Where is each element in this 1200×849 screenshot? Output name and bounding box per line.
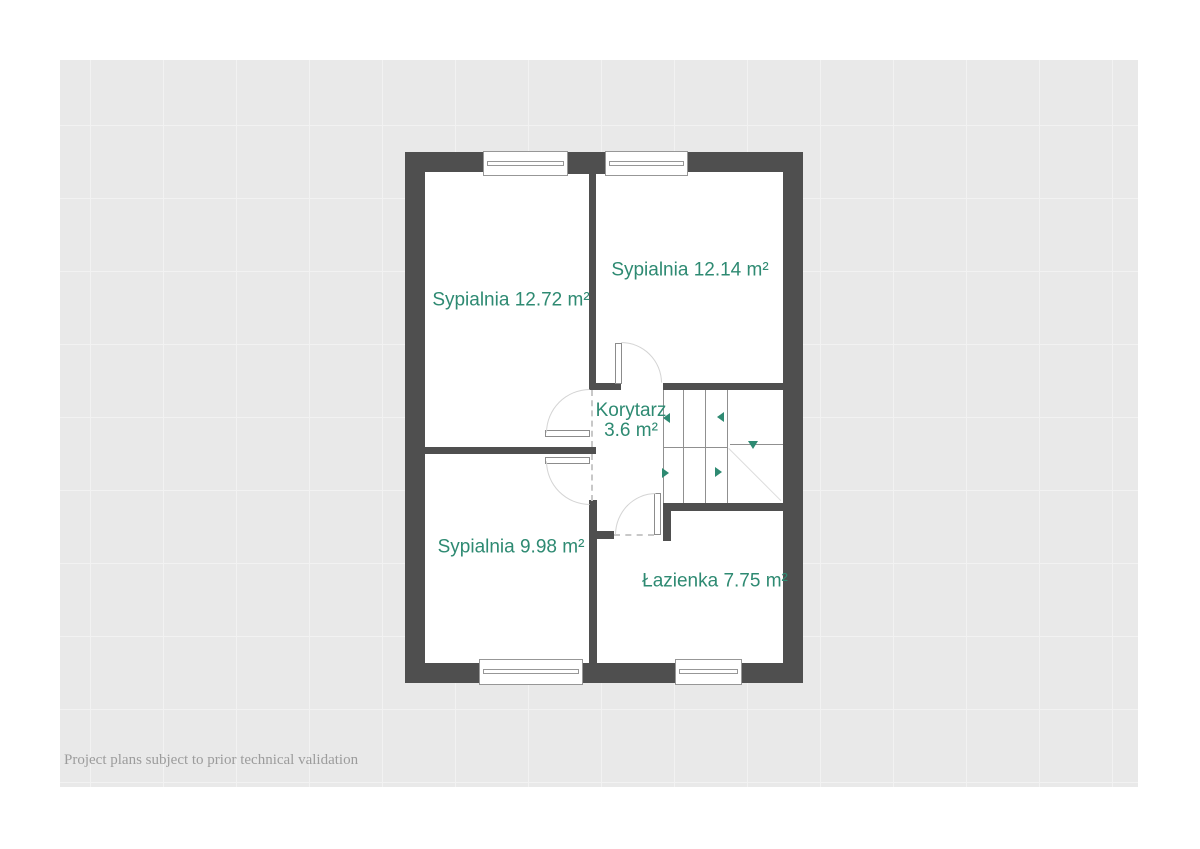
wall-between-top-bedrooms xyxy=(589,172,596,390)
wall-stairs-bottom xyxy=(663,503,783,511)
opening-hallway-bedroom1 xyxy=(591,390,593,447)
stair-arrow-down-icon xyxy=(748,441,758,449)
room-label-bedroom-top-left: Sypialnia 12.72 m² xyxy=(432,290,589,311)
wall-stairs-top xyxy=(663,383,783,390)
window-top-left xyxy=(483,151,568,176)
window-bottom-right xyxy=(675,659,742,685)
window-glass xyxy=(487,161,564,166)
window-bottom-left xyxy=(479,659,583,685)
wall-bathroom-left xyxy=(589,500,597,663)
wall-stairs-bathroom-jog xyxy=(663,503,671,541)
stair-arrow-right-icon xyxy=(662,468,669,478)
stair-arrow-left-icon xyxy=(717,412,724,422)
footer-disclaimer: Project plans subject to prior technical… xyxy=(64,752,358,769)
opening-hallway-bedroom3 xyxy=(591,454,593,501)
room-label-bathroom: Łazienka 7.75 m² xyxy=(642,571,788,592)
window-glass xyxy=(483,669,579,674)
wall-top-pillar xyxy=(568,152,605,174)
room-label-hallway: Korytarz 3.6 m² xyxy=(596,401,667,441)
room-label-bedroom-top-right: Sypialnia 12.14 m² xyxy=(611,260,768,281)
plan-canvas: Sypialnia 12.72 m² Sypialnia 12.14 m² Ko… xyxy=(60,60,1138,787)
hallway-name: Korytarz xyxy=(596,401,667,421)
wall-bathroom-door-stub xyxy=(597,531,614,539)
window-top-right xyxy=(605,151,688,176)
hallway-area: 3.6 m² xyxy=(596,421,667,441)
window-glass xyxy=(679,669,738,674)
window-glass xyxy=(609,161,684,166)
wall-hallway-top-stub xyxy=(596,383,621,390)
room-label-bedroom-bottom-left: Sypialnia 9.98 m² xyxy=(438,537,585,558)
wall-between-left-bedrooms xyxy=(425,447,596,454)
stairs-mid-divider xyxy=(663,447,728,448)
stair-arrow-right-icon xyxy=(715,467,722,477)
